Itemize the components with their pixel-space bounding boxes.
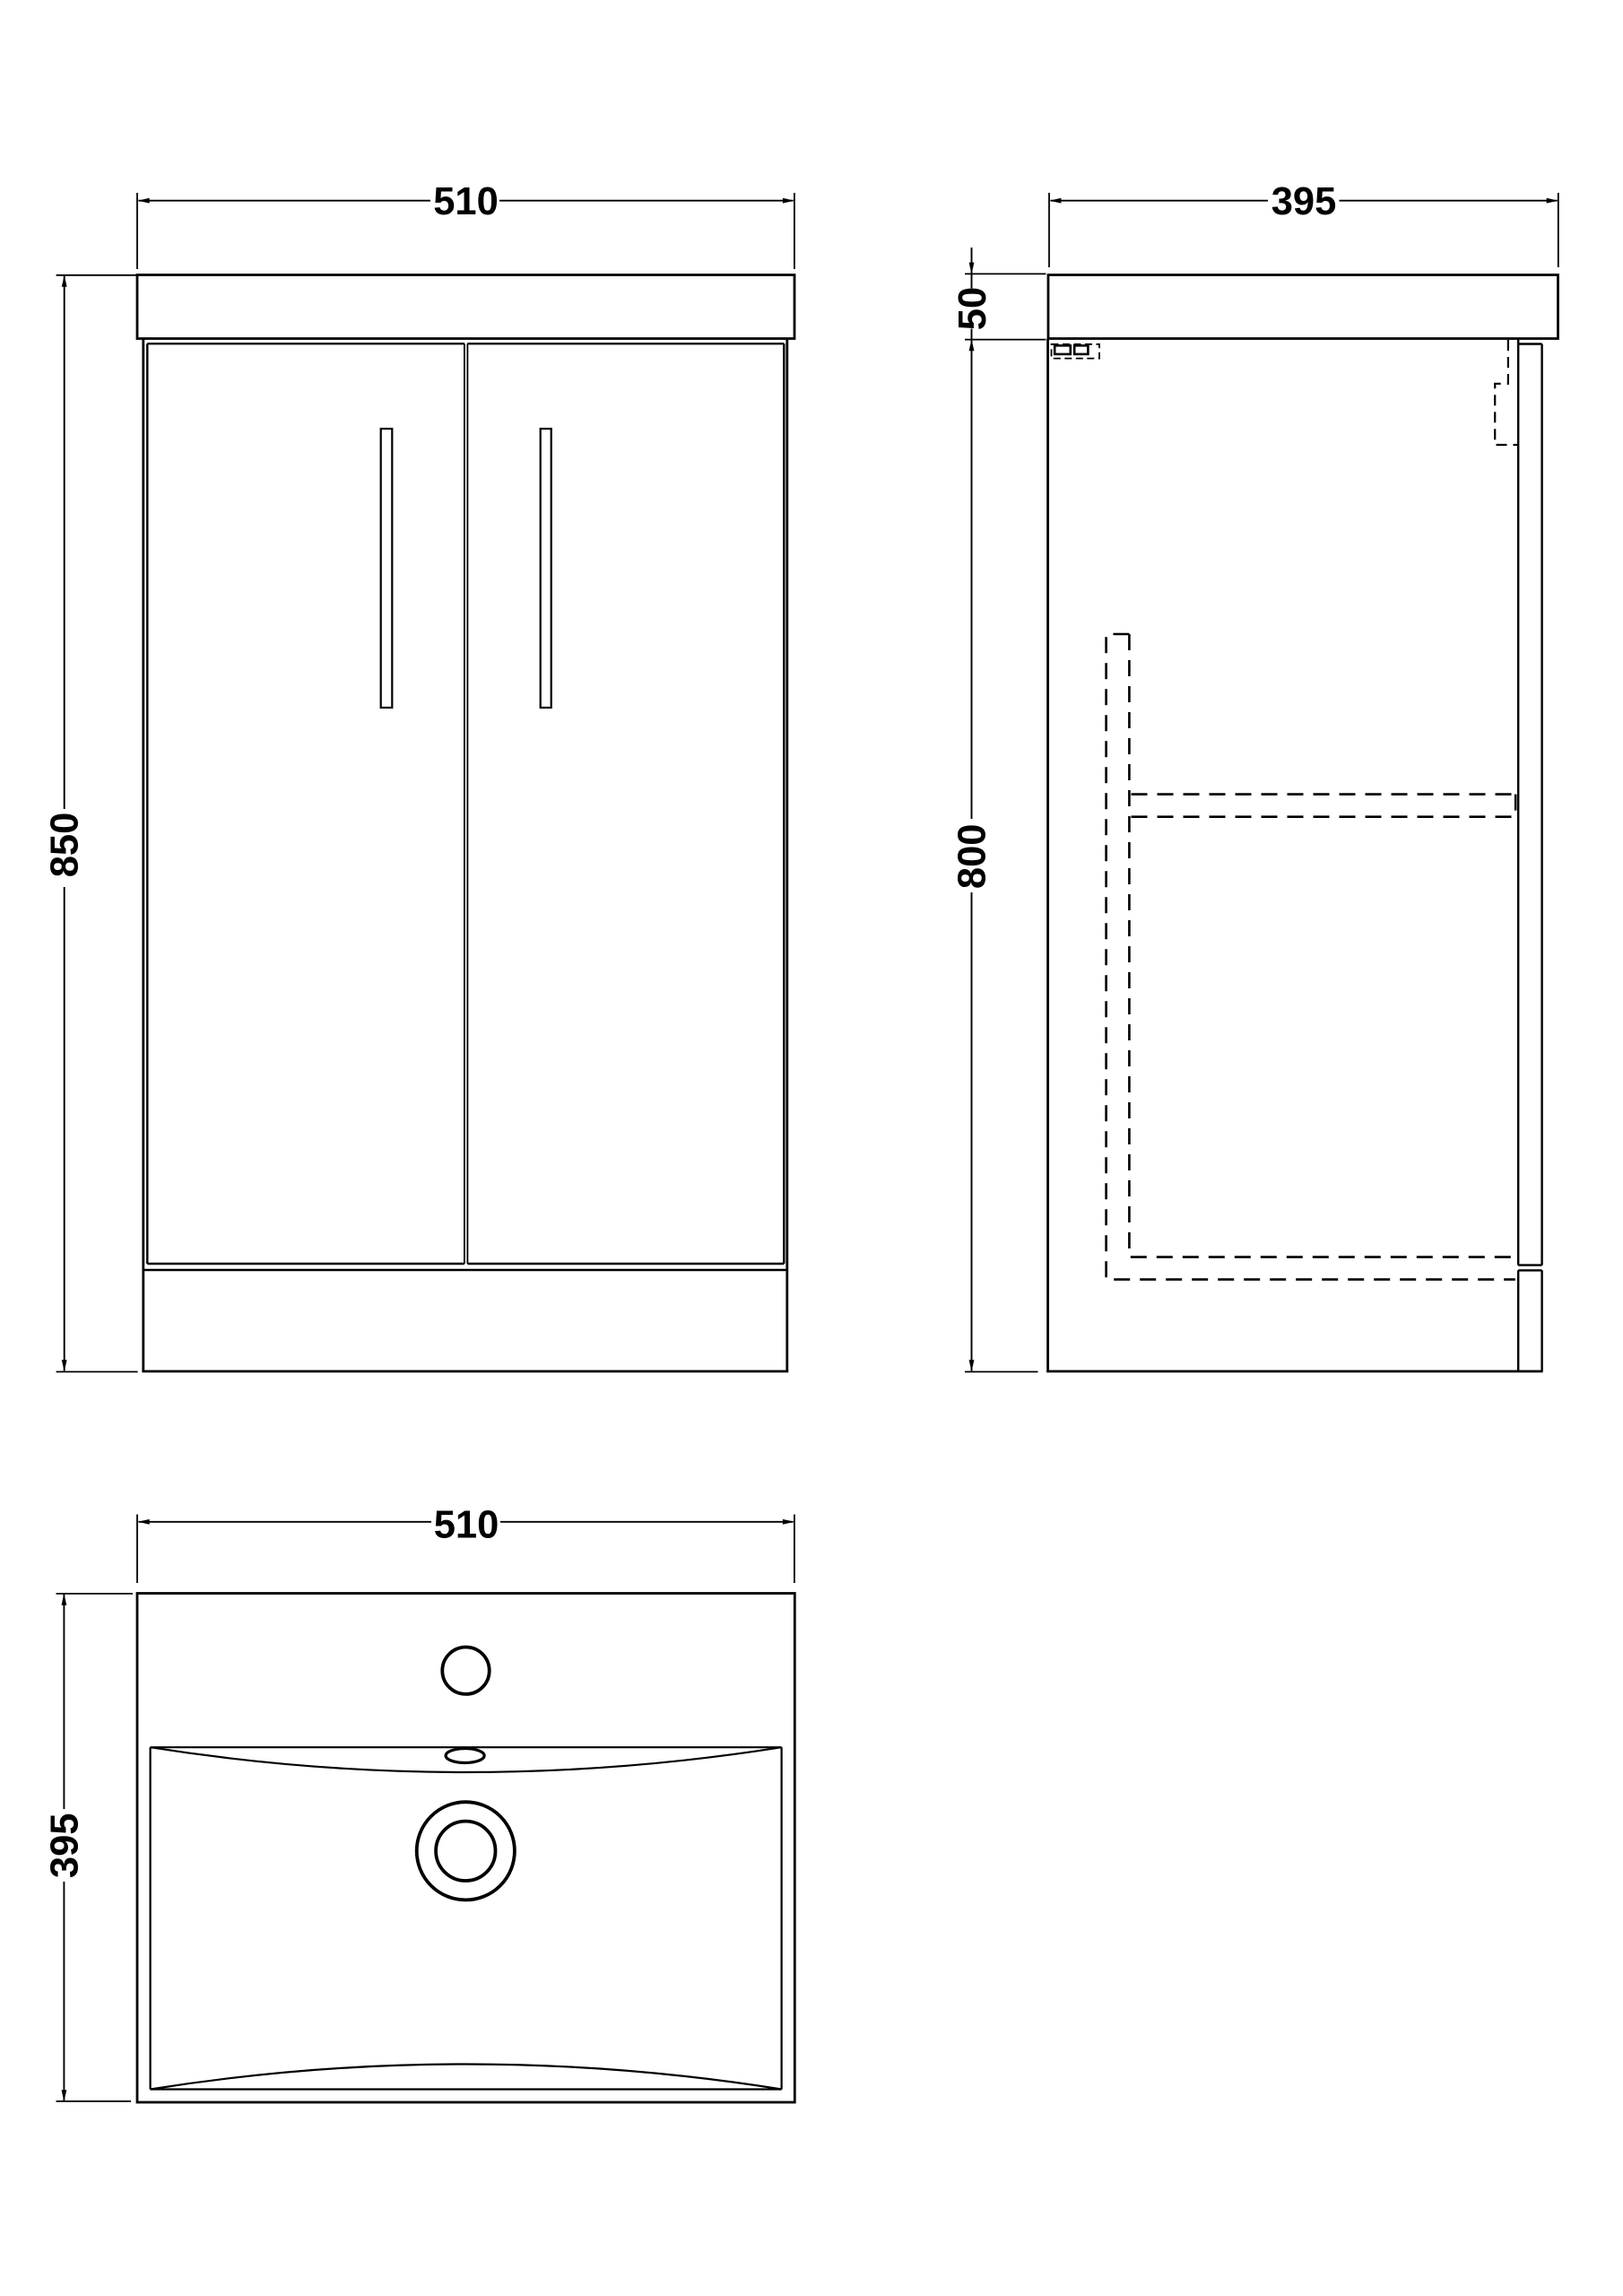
svg-text:800: 800 (951, 824, 994, 890)
svg-text:395: 395 (43, 1813, 86, 1879)
svg-text:395: 395 (1271, 180, 1337, 223)
svg-text:850: 850 (44, 813, 87, 878)
svg-text:510: 510 (433, 180, 499, 223)
svg-text:50: 50 (951, 287, 994, 330)
svg-text:510: 510 (434, 1504, 499, 1547)
